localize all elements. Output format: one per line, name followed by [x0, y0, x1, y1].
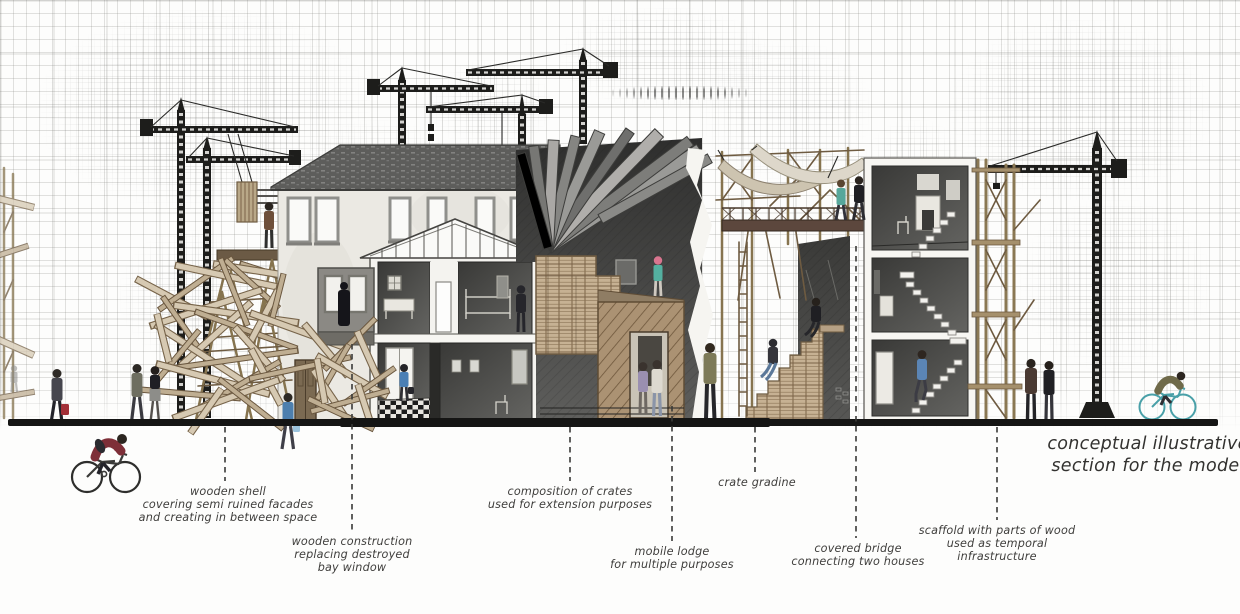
person-standing-pair-1 [1025, 359, 1037, 419]
cyclist-right [1140, 372, 1196, 420]
annotation-mobile-lodge: mobile lodge for multiple purposes [582, 545, 762, 571]
artboard: wooden shell covering semi ruined facade… [0, 0, 1240, 614]
person-bridge-woman [836, 180, 846, 221]
person-standing-pair-2 [1044, 361, 1055, 419]
person-sitting-stairs [761, 339, 778, 380]
person-on-platform [264, 202, 274, 248]
person-couple-man [132, 364, 143, 422]
crane-pedestal [1079, 402, 1115, 418]
annotation-scaffold: scaffold with parts of wood used as temp… [897, 524, 1097, 563]
ground-line [8, 418, 1218, 427]
hanging-pallet [228, 134, 286, 222]
tower-crane-right [988, 130, 1127, 418]
red-bag [61, 404, 69, 415]
bedroom-left [378, 262, 430, 334]
center-ruined-building [516, 128, 714, 420]
person-walking-red-bag [51, 369, 69, 423]
cyclist-left [72, 434, 140, 492]
annotation-wooden-construction: wooden construction replacing destroyed … [262, 535, 442, 574]
checkered-floor [378, 398, 430, 420]
annotation-composition-of-crates: composition of crates used for extension… [460, 485, 680, 511]
annotation-crate-gradine: crate gradine [687, 476, 827, 489]
annotation-wooden-shell: wooden shell covering semi ruined facade… [118, 485, 338, 524]
drawing-title: conceptual illustrative section for the … [1038, 434, 1240, 478]
